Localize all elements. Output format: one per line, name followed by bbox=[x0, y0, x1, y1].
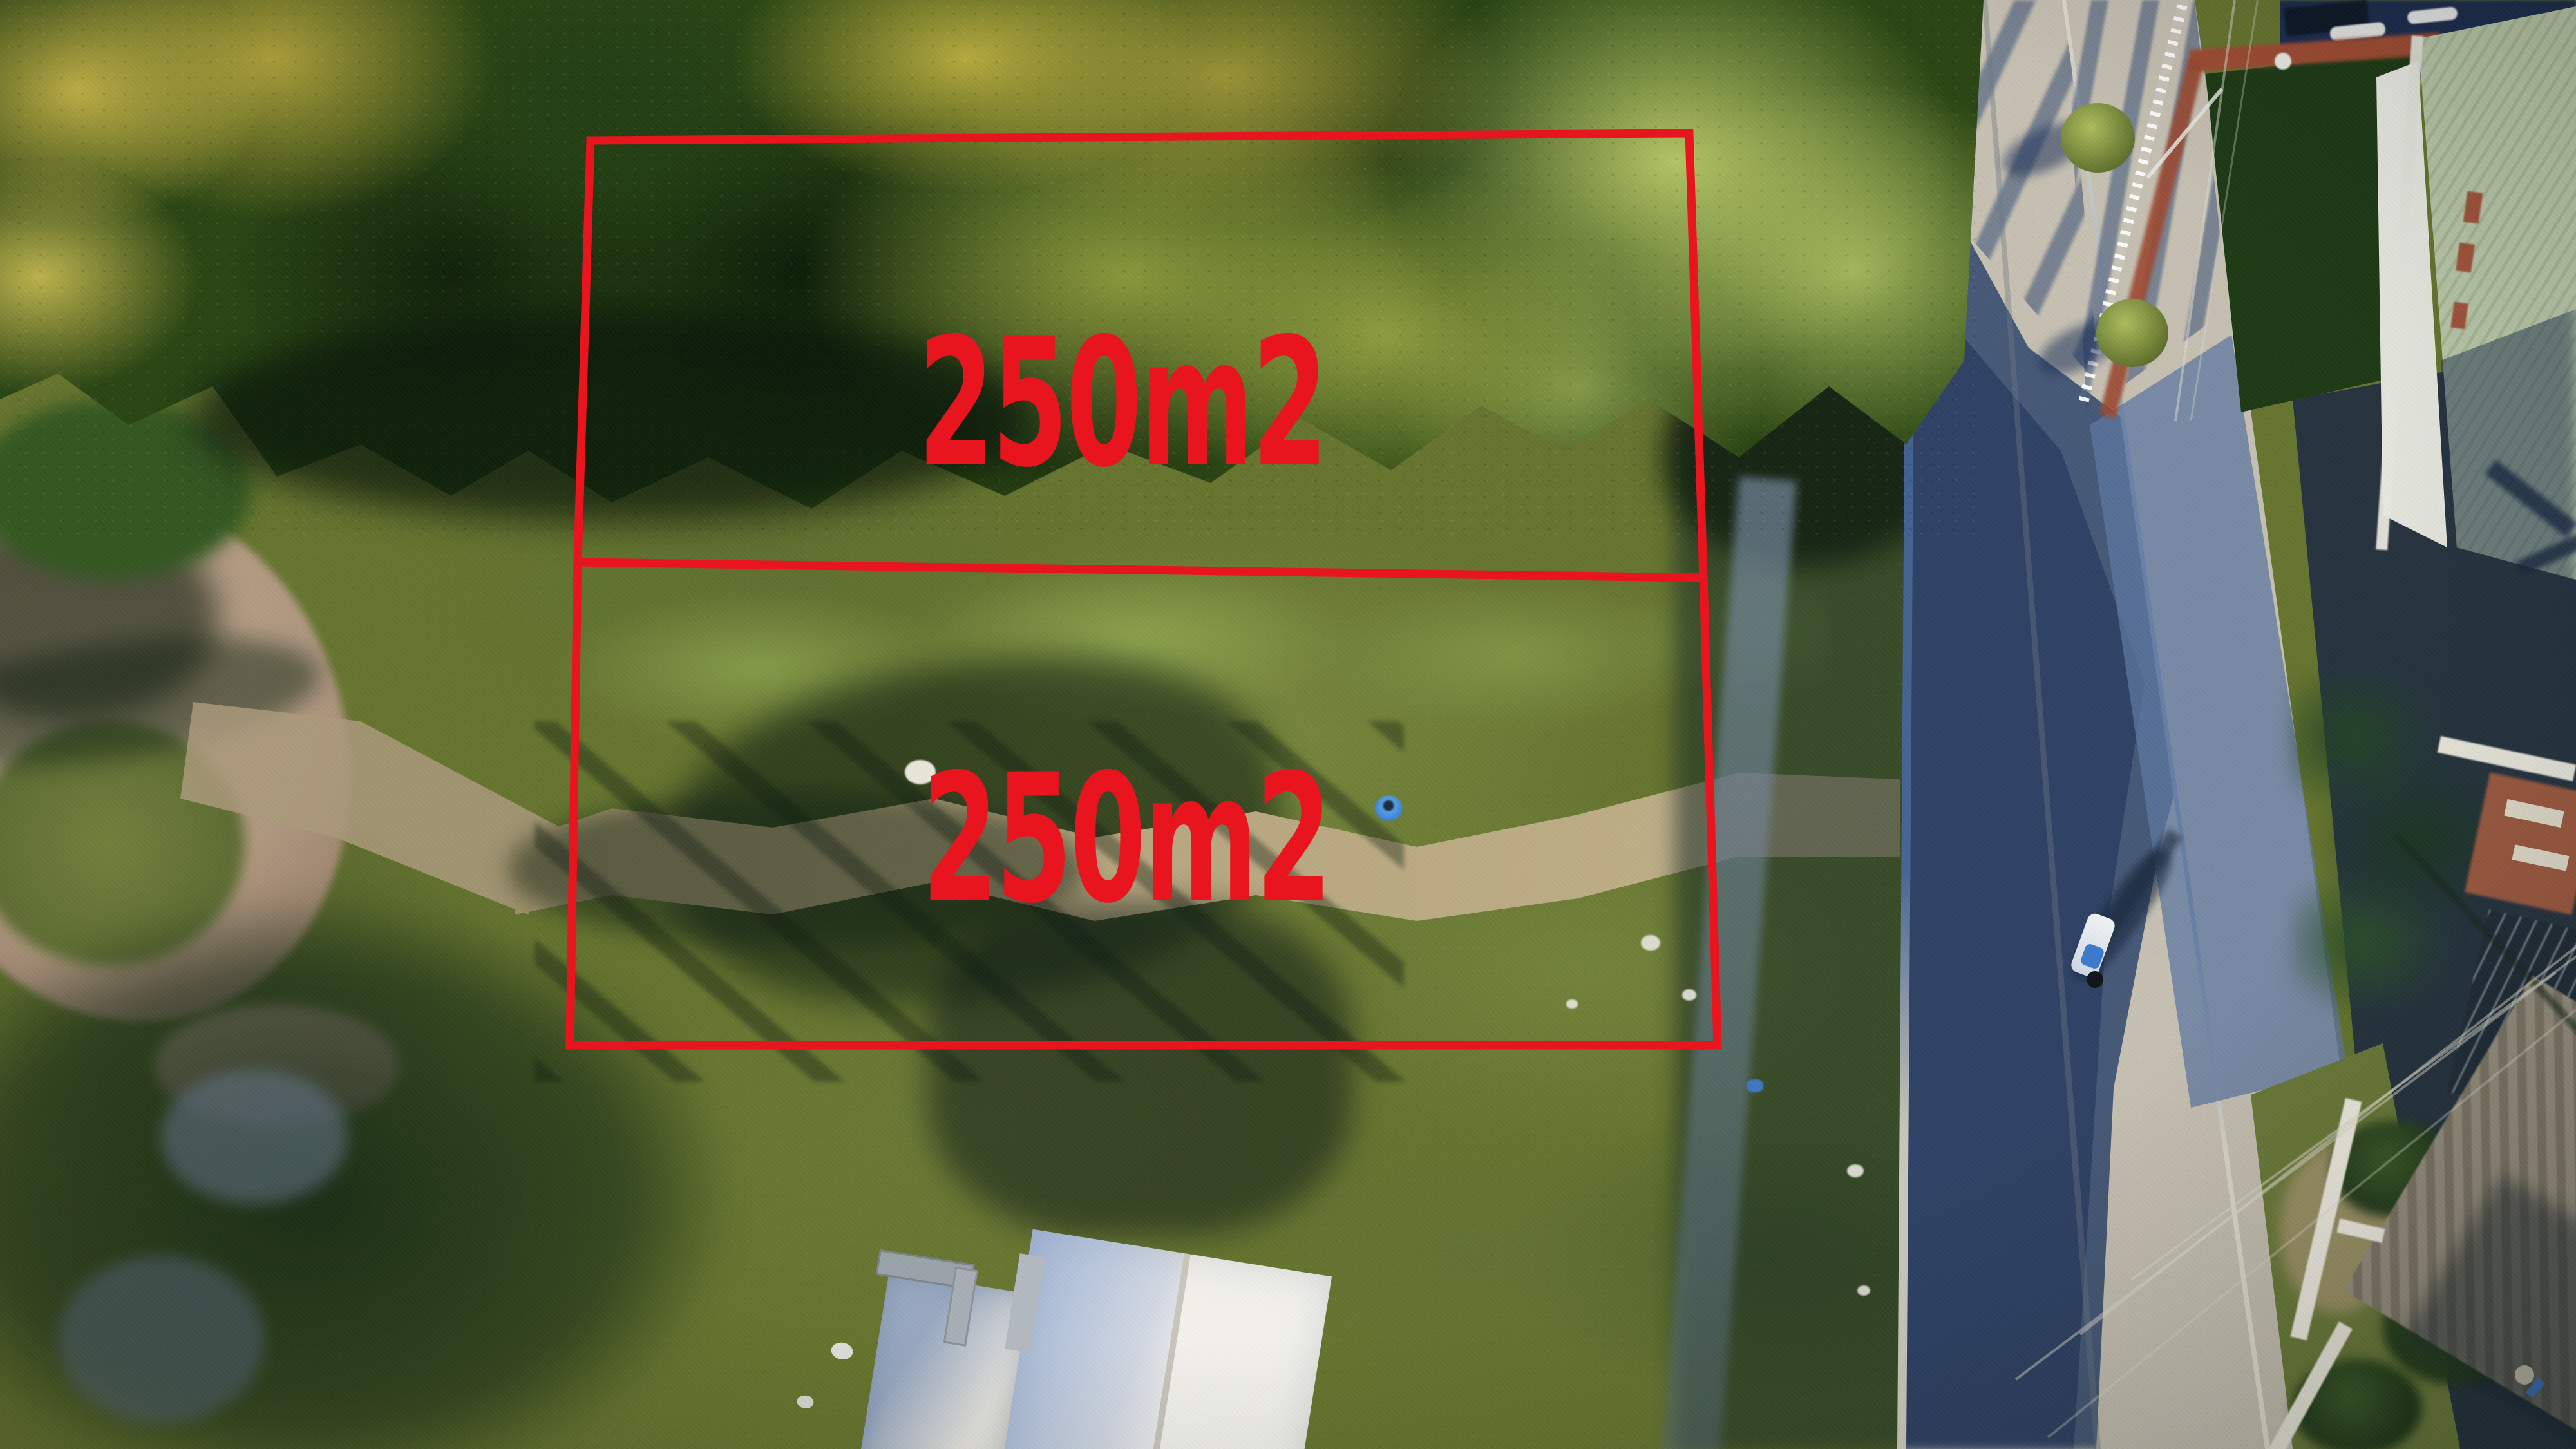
plot-label-lower: 250m2 bbox=[922, 736, 1330, 942]
aerial-photo: 250m2 250m2 bbox=[0, 0, 2576, 1449]
plot-annotations: 250m2 250m2 bbox=[0, 0, 2576, 1449]
plot-label-upper: 250m2 bbox=[918, 300, 1326, 506]
